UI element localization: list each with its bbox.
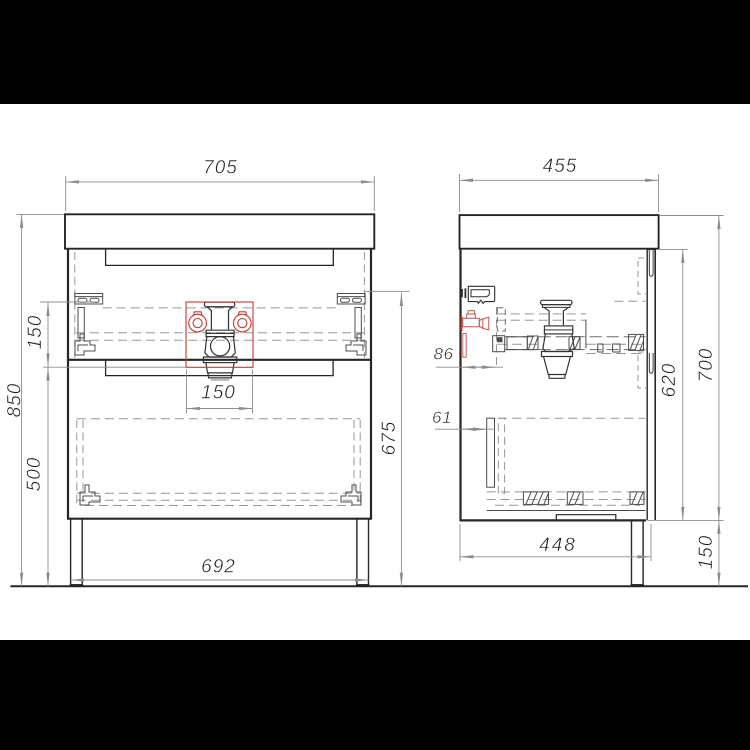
- svg-text:675: 675: [379, 421, 400, 456]
- svg-text:455: 455: [543, 156, 578, 177]
- svg-text:620: 620: [659, 363, 680, 398]
- svg-text:150: 150: [25, 315, 46, 350]
- svg-text:850: 850: [5, 383, 26, 418]
- svg-text:705: 705: [203, 158, 238, 179]
- svg-text:700: 700: [696, 348, 717, 383]
- svg-text:692: 692: [201, 557, 236, 578]
- svg-text:500: 500: [24, 457, 45, 492]
- svg-text:150: 150: [696, 535, 717, 570]
- svg-text:150: 150: [201, 383, 236, 404]
- svg-text:86: 86: [434, 345, 454, 364]
- svg-text:448: 448: [539, 535, 577, 556]
- svg-text:61: 61: [432, 408, 452, 427]
